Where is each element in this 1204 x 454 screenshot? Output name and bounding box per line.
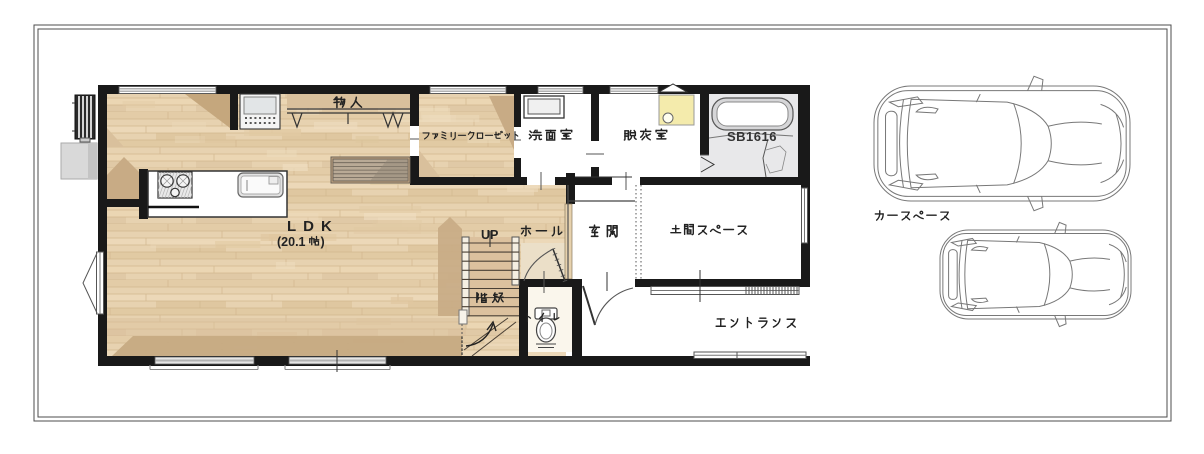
svg-text:UP: UP [481,228,498,242]
svg-text:SB1616: SB1616 [727,129,777,144]
svg-text:): ) [321,235,325,249]
svg-text:LDK: LDK [287,218,339,235]
svg-text:(20.1: (20.1 [277,235,306,249]
